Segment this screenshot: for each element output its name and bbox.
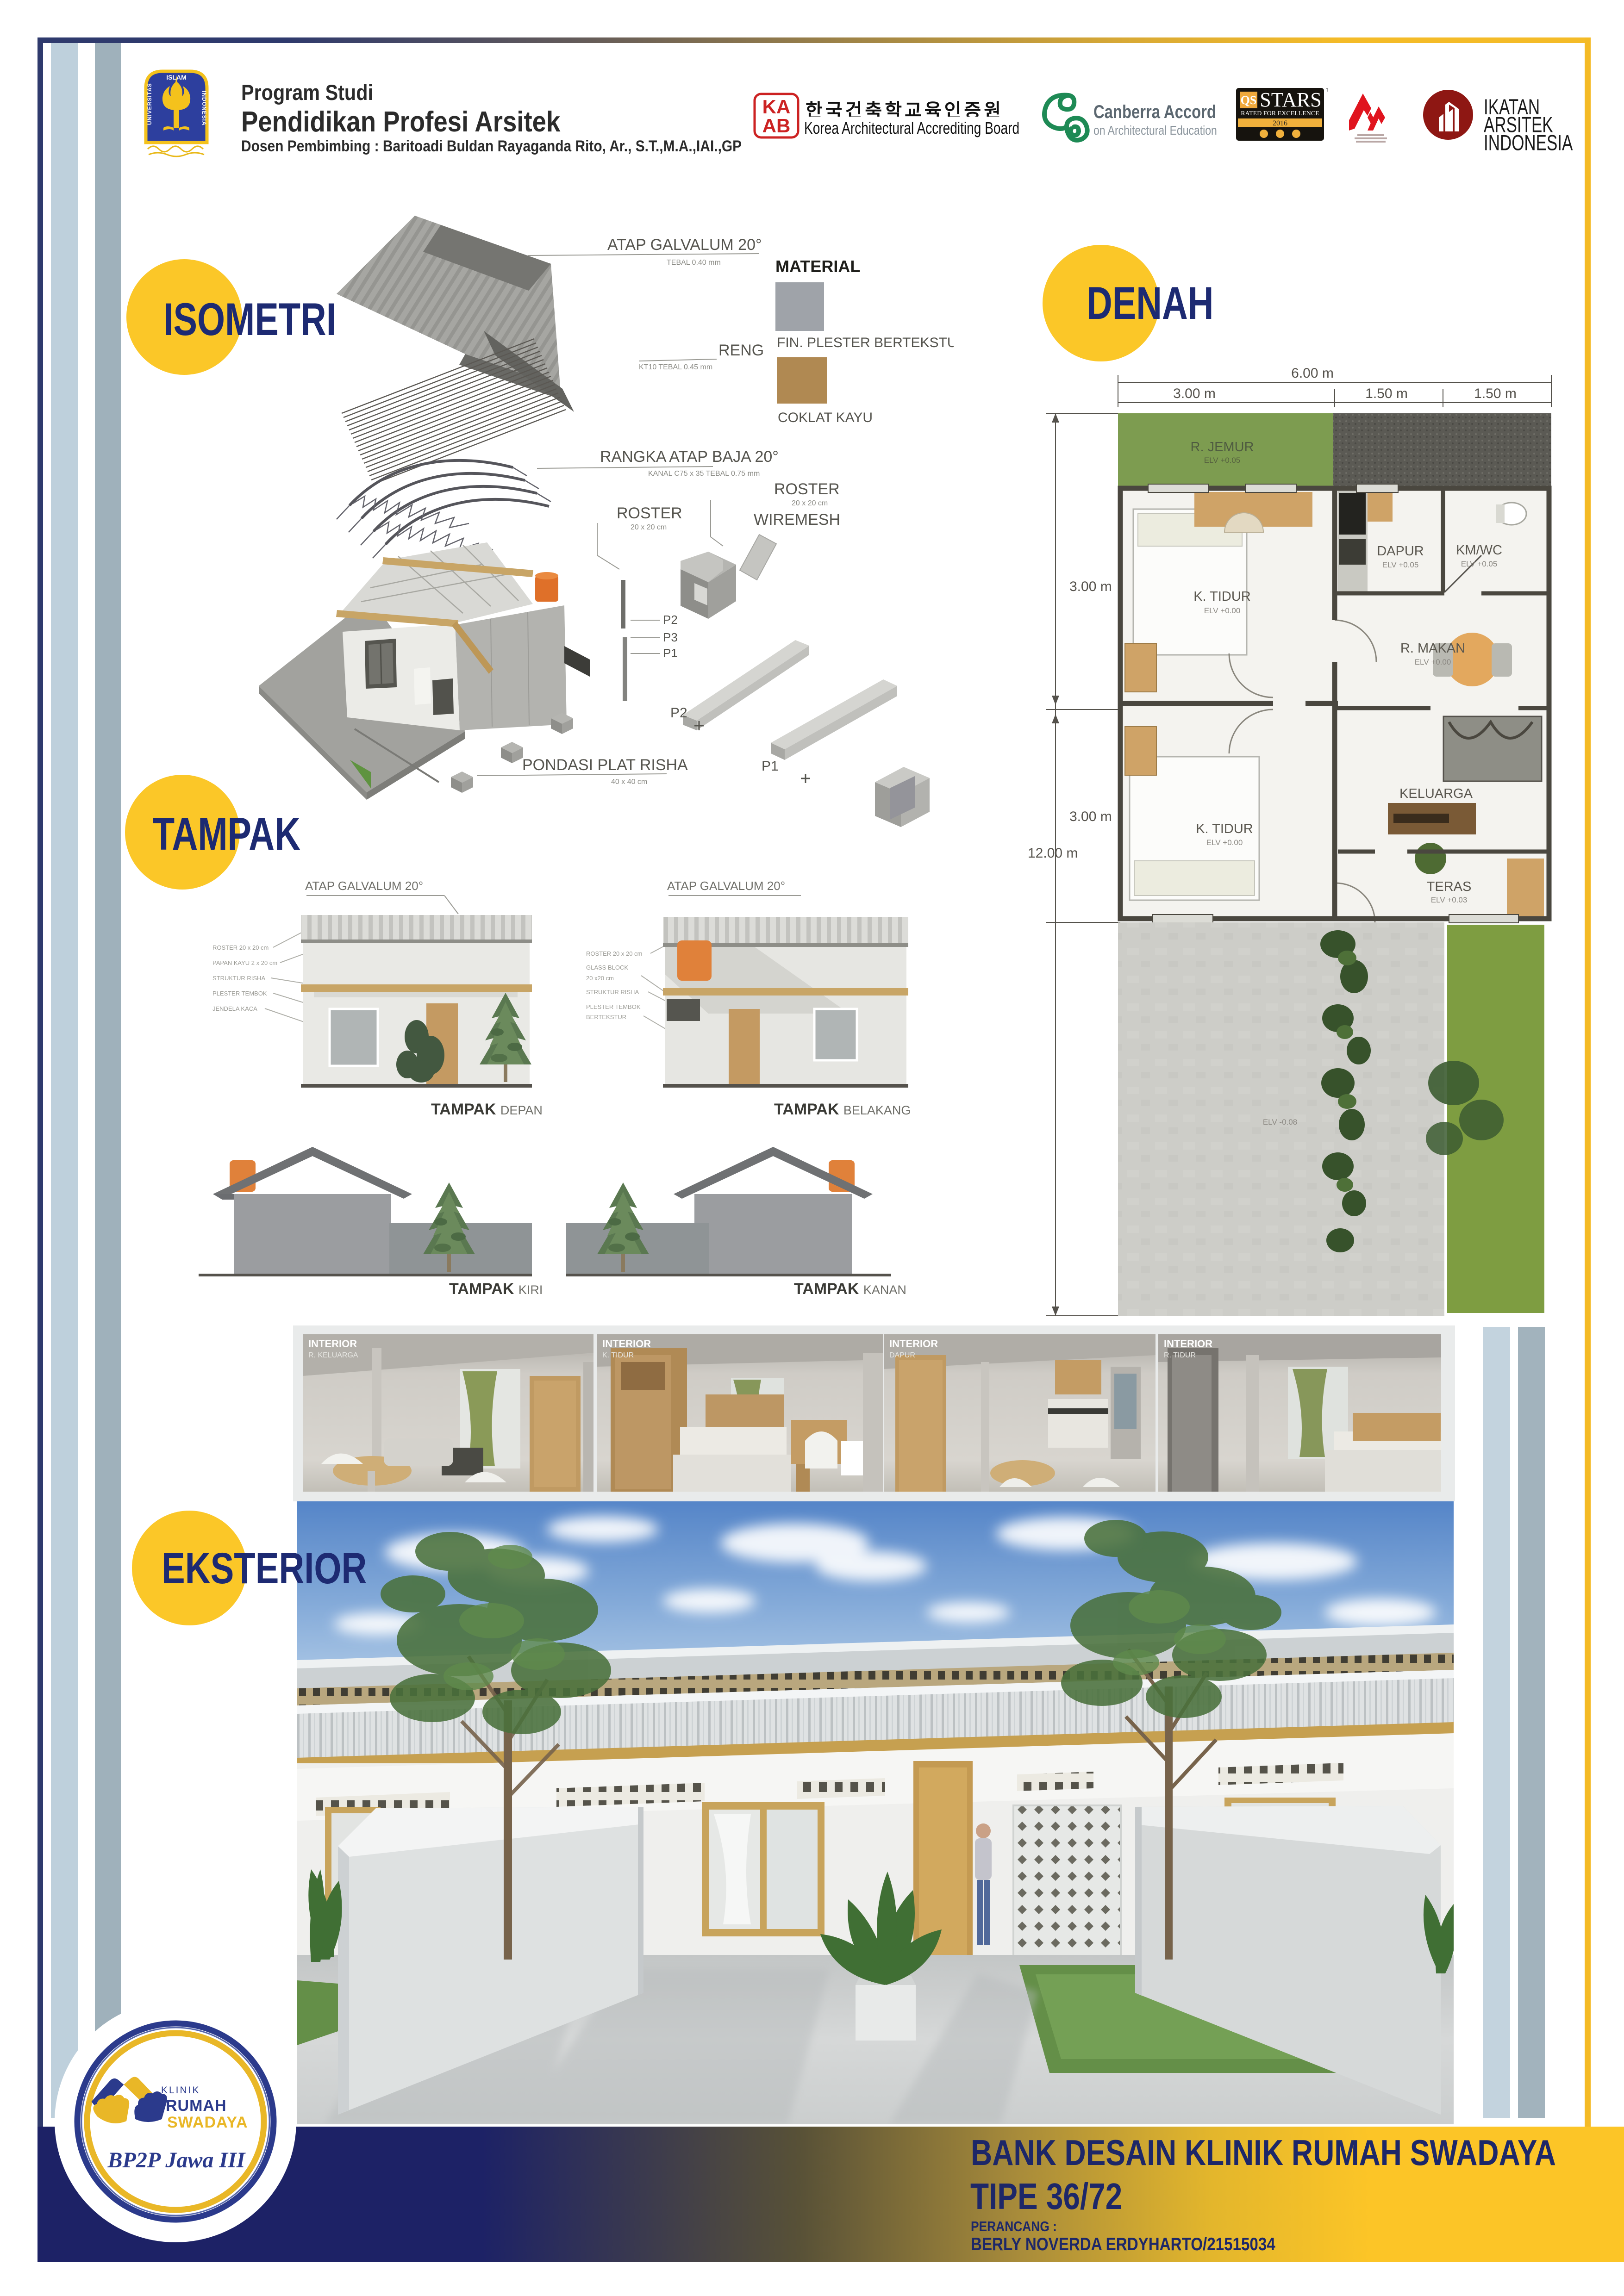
- svg-text:KT10 TEBAL 0.45 mm: KT10 TEBAL 0.45 mm: [639, 363, 712, 371]
- svg-text:P2: P2: [663, 613, 678, 627]
- svg-text:ELV +0.05: ELV +0.05: [1204, 456, 1241, 465]
- svg-text:INTERIOR: INTERIOR: [1164, 1338, 1212, 1350]
- svg-text:ELV +0.03: ELV +0.03: [1431, 896, 1468, 904]
- svg-text:TAMPAK BELAKANG: TAMPAK BELAKANG: [774, 1101, 911, 1118]
- svg-text:COKLAT KAYU: COKLAT KAYU: [778, 410, 873, 425]
- svg-text:DAPUR: DAPUR: [1377, 544, 1424, 559]
- svg-text:JENDELA KACA: JENDELA KACA: [212, 1005, 257, 1012]
- svg-text:ROSTER: ROSTER: [774, 480, 840, 498]
- svg-text:P1: P1: [663, 646, 678, 660]
- svg-text:ELV +0.00: ELV +0.00: [1204, 606, 1241, 615]
- svg-text:1.50 m: 1.50 m: [1474, 386, 1517, 401]
- svg-text:6.00 m: 6.00 m: [1291, 366, 1334, 381]
- svg-text:20 x 20 cm: 20 x 20 cm: [631, 523, 667, 531]
- svg-text:P3: P3: [663, 630, 678, 644]
- svg-text:1.50 m: 1.50 m: [1365, 386, 1408, 401]
- svg-text:KANAL C75 x 35 TEBAL 0.75 mm: KANAL C75 x 35 TEBAL 0.75 mm: [648, 470, 760, 478]
- svg-text:R. TIDUR: R. TIDUR: [1164, 1351, 1196, 1359]
- svg-text:DAPUR: DAPUR: [889, 1351, 915, 1359]
- svg-text:R. KELUARGA: R. KELUARGA: [308, 1351, 358, 1359]
- svg-text:ROSTER: ROSTER: [617, 504, 682, 522]
- svg-text:PLESTER TEMBOK: PLESTER TEMBOK: [212, 990, 267, 997]
- svg-text:3.00 m: 3.00 m: [1069, 579, 1112, 594]
- svg-text:20 x 20 cm: 20 x 20 cm: [792, 499, 828, 507]
- svg-text:BERTEKSTUR: BERTEKSTUR: [586, 1014, 626, 1020]
- svg-text:WIREMESH: WIREMESH: [754, 511, 840, 529]
- svg-text:P2: P2: [670, 705, 687, 721]
- svg-text:UNIVERSITAS: UNIVERSITAS: [146, 83, 153, 125]
- svg-text:K. TIDUR: K. TIDUR: [1196, 821, 1253, 836]
- svg-text:TAMPAK KIRI: TAMPAK KIRI: [449, 1280, 543, 1298]
- svg-text:TERAS: TERAS: [1427, 879, 1472, 894]
- svg-text:ELV -0.08: ELV -0.08: [1263, 1118, 1297, 1126]
- svg-text:ATAP GALVALUM 20°: ATAP GALVALUM 20°: [607, 236, 762, 254]
- svg-text:PONDASI PLAT RISHA: PONDASI PLAT RISHA: [522, 756, 688, 774]
- svg-text:R. JEMUR: R. JEMUR: [1191, 440, 1254, 454]
- svg-text:INTERIOR: INTERIOR: [602, 1338, 651, 1350]
- svg-text:INDONESIA: INDONESIA: [201, 91, 207, 126]
- svg-text:ELV +0.05: ELV +0.05: [1382, 560, 1419, 569]
- svg-text:STRUKTUR RISHA: STRUKTUR RISHA: [586, 989, 639, 996]
- svg-text:40 x 40 cm: 40 x 40 cm: [611, 778, 647, 786]
- svg-text:FIN. PLESTER BERTEKSTUR: FIN. PLESTER BERTEKSTUR: [777, 335, 954, 350]
- svg-text:SWADAYA: SWADAYA: [167, 2114, 248, 2131]
- svg-text:3.00 m: 3.00 m: [1069, 809, 1112, 824]
- svg-text:INTERIOR: INTERIOR: [889, 1338, 938, 1350]
- svg-text:TAMPAK KANAN: TAMPAK KANAN: [794, 1280, 906, 1298]
- svg-text:BP2P Jawa III: BP2P Jawa III: [107, 2148, 246, 2172]
- svg-text:RATED FOR EXCELLENCE: RATED FOR EXCELLENCE: [1241, 110, 1319, 117]
- svg-text:ATAP GALVALUM 20°: ATAP GALVALUM 20°: [667, 879, 785, 893]
- svg-text:ROSTER 20 x 20 cm: ROSTER 20 x 20 cm: [212, 944, 269, 951]
- svg-text:MATERIAL: MATERIAL: [775, 257, 860, 276]
- svg-text:ISLAM: ISLAM: [166, 74, 187, 81]
- svg-text:KA: KA: [762, 96, 791, 118]
- svg-text:KLINIK: KLINIK: [161, 2085, 200, 2096]
- svg-text:K. TIDUR: K. TIDUR: [1193, 589, 1251, 604]
- svg-text:20 x20 cm: 20 x20 cm: [586, 975, 614, 982]
- svg-text:RENG: RENG: [718, 342, 764, 359]
- svg-text:AB: AB: [762, 115, 791, 137]
- svg-text:ELV +0.05: ELV +0.05: [1461, 560, 1498, 568]
- svg-text:QS: QS: [1241, 93, 1257, 107]
- svg-text:GLASS BLOCK: GLASS BLOCK: [586, 964, 628, 971]
- svg-text:ROSTER 20 x 20 cm: ROSTER 20 x 20 cm: [586, 950, 642, 957]
- svg-text:STARS: STARS: [1260, 88, 1321, 111]
- svg-text:PAPAN KAYU 2 x 20 cm: PAPAN KAYU 2 x 20 cm: [212, 959, 277, 966]
- svg-text:3.00 m: 3.00 m: [1173, 386, 1216, 401]
- svg-text:P1: P1: [762, 759, 779, 774]
- svg-text:TAMPAK DEPAN: TAMPAK DEPAN: [431, 1101, 543, 1118]
- svg-text:K. TIDUR: K. TIDUR: [602, 1351, 634, 1359]
- svg-text:R. MAKAN: R. MAKAN: [1400, 641, 1465, 656]
- svg-text:RUMAH: RUMAH: [166, 2097, 227, 2115]
- svg-text:PLESTER TEMBOK: PLESTER TEMBOK: [586, 1003, 641, 1010]
- svg-text:KM/WC: KM/WC: [1456, 543, 1502, 558]
- svg-text:INTERIOR: INTERIOR: [308, 1338, 357, 1350]
- svg-text:TEBAL 0.40 mm: TEBAL 0.40 mm: [667, 259, 721, 267]
- svg-text:ELV +0.00: ELV +0.00: [1206, 838, 1243, 847]
- svg-text:ATAP GALVALUM 20°: ATAP GALVALUM 20°: [305, 879, 423, 893]
- svg-text:2016: 2016: [1273, 119, 1287, 127]
- svg-text:ELV +0.00: ELV +0.00: [1415, 658, 1451, 666]
- svg-text:RANGKA ATAP BAJA 20°: RANGKA ATAP BAJA 20°: [600, 448, 779, 466]
- svg-text:STRUKTUR RISHA: STRUKTUR RISHA: [212, 975, 265, 982]
- svg-text:TM: TM: [1326, 88, 1328, 93]
- svg-text:KELUARGA: KELUARGA: [1399, 786, 1473, 801]
- svg-text:12.00 m: 12.00 m: [1028, 846, 1078, 861]
